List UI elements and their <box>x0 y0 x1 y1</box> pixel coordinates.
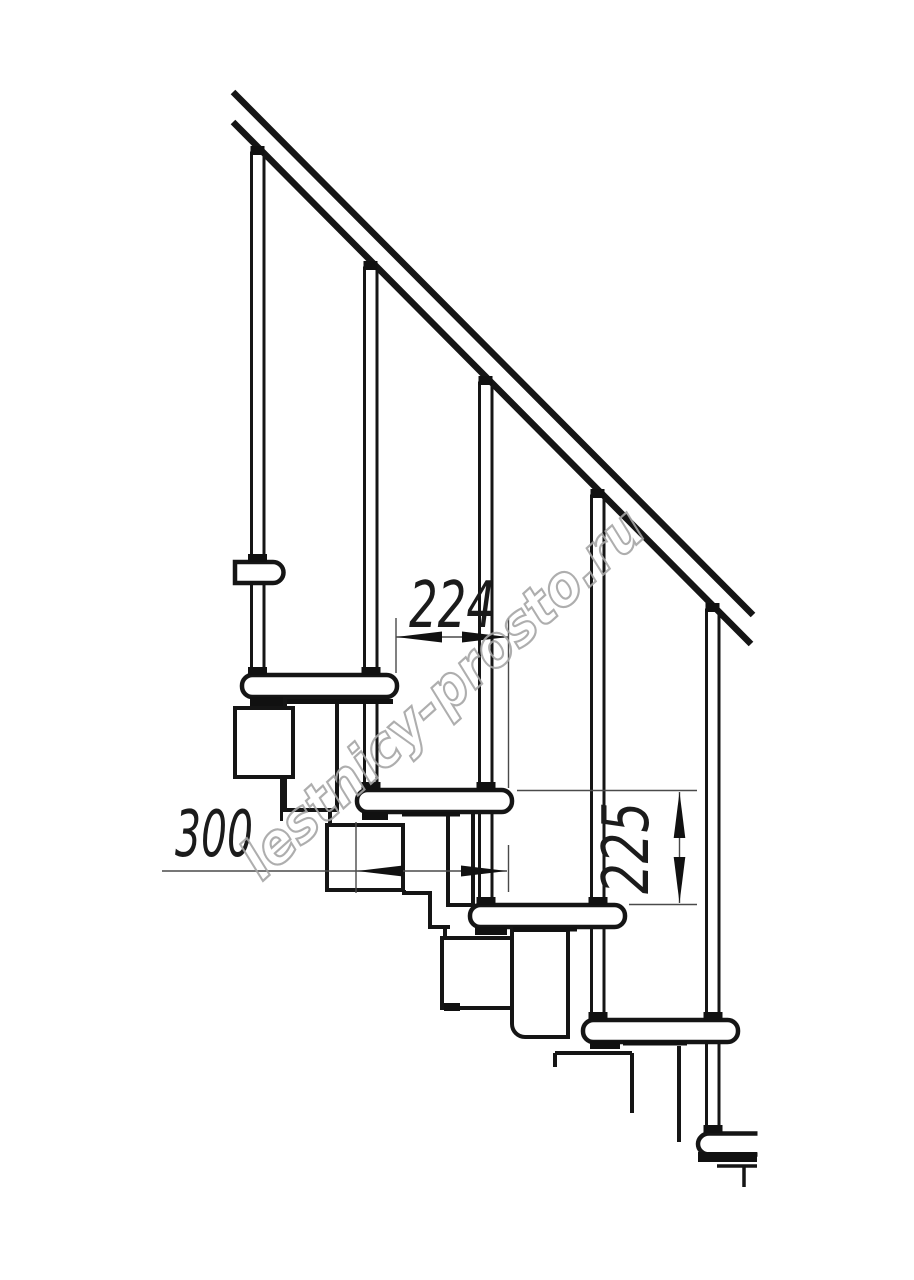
module-step-edge <box>717 1166 757 1187</box>
support-column <box>512 930 568 1037</box>
baluster <box>707 610 720 1133</box>
bracket-strip <box>402 812 460 817</box>
baluster-cap <box>479 376 493 385</box>
arrowhead <box>674 792 686 838</box>
arrowhead <box>461 866 507 877</box>
baluster-joint <box>362 667 381 675</box>
bracket <box>250 697 283 706</box>
support-column <box>448 812 473 905</box>
baluster-cap <box>364 261 378 270</box>
arrowhead <box>674 857 686 903</box>
module-connector <box>404 890 450 938</box>
tread <box>470 905 625 927</box>
dimension-value-rise: 225 <box>590 802 664 894</box>
staircase-drawing-canvas: 224 300 225 lestnicy-prosto.ru <box>0 0 914 1280</box>
tread-cut <box>698 1134 758 1155</box>
bracket-strip <box>513 927 577 932</box>
baluster-cap <box>706 603 720 612</box>
baluster-joint <box>477 782 496 790</box>
baluster-joint <box>589 897 608 905</box>
tread <box>583 1020 738 1042</box>
dimension-225: 225 <box>517 791 697 905</box>
baluster-cap <box>251 146 265 155</box>
baluster <box>252 153 265 675</box>
bracket <box>362 812 388 820</box>
baluster-joint <box>704 1125 723 1133</box>
bracket-strip <box>287 699 393 704</box>
baluster-joint <box>704 1012 723 1020</box>
bracket-strip <box>623 1041 687 1046</box>
tread <box>242 675 397 697</box>
module-box <box>442 938 517 1008</box>
baluster-cap <box>591 489 605 498</box>
module-box <box>235 708 293 777</box>
bracket <box>475 927 507 935</box>
baluster-joint <box>248 667 267 675</box>
baluster-joint <box>589 1012 608 1020</box>
baluster-joint <box>477 897 496 905</box>
baluster-joint <box>248 554 267 562</box>
module-step-edge <box>555 1053 632 1113</box>
module-box <box>327 825 403 890</box>
bracket <box>590 1041 620 1049</box>
bracket <box>698 1152 757 1162</box>
module-foot <box>444 1003 460 1011</box>
upper-landing-tread-end <box>235 562 284 583</box>
staircase-drawing: 224 300 225 lestnicy-prosto.ru <box>0 0 914 1280</box>
